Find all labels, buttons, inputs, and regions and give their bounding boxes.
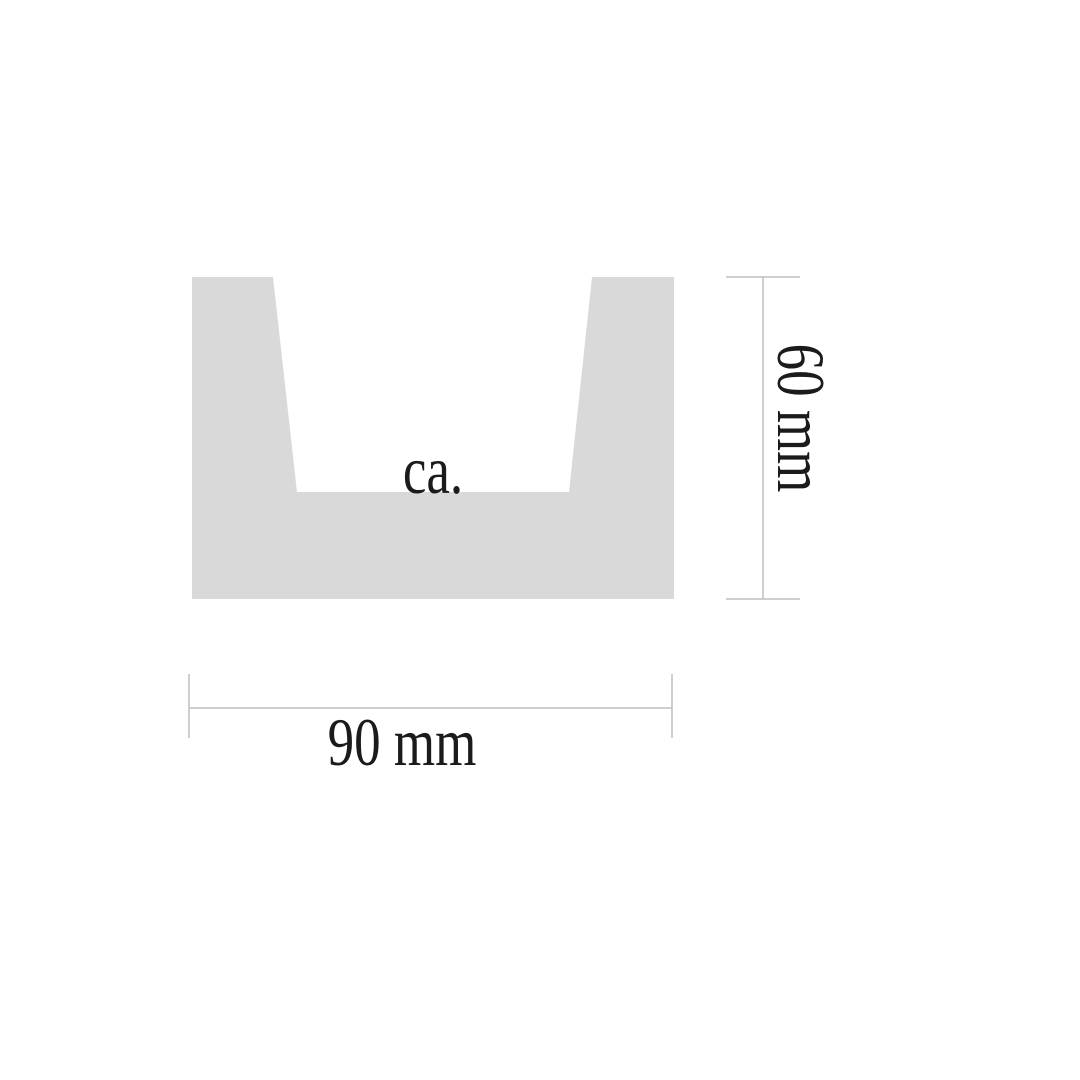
cross-section-drawing xyxy=(0,0,1080,1080)
width-dimension-label: 90 mm xyxy=(328,708,477,776)
diagram-canvas: ca. 60 mm 90 mm xyxy=(0,0,1080,1080)
height-dimension-label: 60 mm xyxy=(767,344,835,493)
approx-note-label: ca. xyxy=(403,436,463,504)
